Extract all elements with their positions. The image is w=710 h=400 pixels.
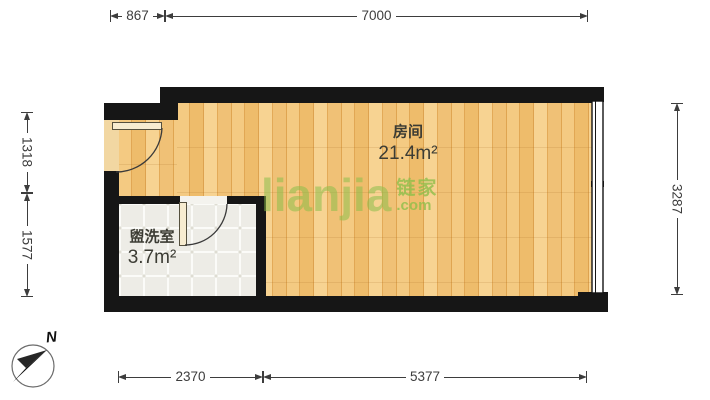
dim-tick (586, 371, 587, 383)
dimension-top-867: 867 (110, 9, 165, 23)
dim-tick (110, 10, 111, 22)
dim-line (396, 16, 580, 17)
bathroom-door-leaf (179, 202, 187, 246)
compass-circle (12, 345, 54, 387)
dim-tick (118, 371, 119, 383)
dim-tick (165, 10, 166, 22)
room-name: 房间 (393, 121, 423, 142)
bathroom-door-opening (180, 196, 227, 204)
dim-tick (263, 371, 264, 383)
dim-line (173, 16, 357, 17)
dimension-left-1577: 1577 (20, 193, 34, 297)
compass-north-label: N (45, 328, 58, 346)
dimension-right-3287: 3287 (670, 103, 684, 295)
dim-arrow-left-icon (110, 13, 118, 19)
dim-tick (671, 294, 683, 295)
dim-tick (587, 10, 588, 22)
wall-top-left (104, 103, 178, 120)
entry-door-leaf (112, 122, 162, 130)
bathroom-name: 盥洗室 (129, 226, 174, 247)
dim-arrow-up-icon (24, 193, 30, 201)
room-area: 21.4m² (378, 143, 437, 165)
dim-label: 7000 (357, 9, 395, 23)
wall-top-main (160, 87, 603, 103)
dim-line (27, 201, 28, 226)
window-frame (592, 101, 603, 293)
dim-arrow-up-icon (674, 103, 680, 111)
dim-label: 1577 (20, 226, 35, 264)
dimension-left-1318: 1318 (20, 112, 34, 193)
dim-line (27, 120, 28, 133)
window-mullion (591, 181, 604, 187)
dim-line (210, 377, 255, 378)
bathroom-wall-top-left (104, 196, 180, 204)
dim-label: 2370 (171, 370, 209, 384)
dim-tick (671, 103, 683, 104)
bathroom-wall-right (256, 196, 266, 296)
wall-left-lower (104, 171, 119, 312)
dim-line (27, 264, 28, 289)
dim-label: 5377 (406, 370, 444, 384)
dim-label: 1318 (20, 133, 35, 171)
dim-arrow-left-icon (165, 13, 173, 19)
wall-bottom (104, 296, 608, 312)
dim-arrow-up-icon (24, 112, 30, 120)
dim-line (677, 111, 678, 180)
dim-line (126, 377, 171, 378)
dim-line (27, 172, 28, 185)
dim-line (271, 377, 406, 378)
dim-arrow-left-icon (118, 374, 126, 380)
dimension-bottom-5377: 5377 (263, 370, 587, 384)
dim-line (677, 218, 678, 287)
dim-tick (21, 193, 33, 194)
dim-label: 867 (122, 9, 153, 23)
dim-tick (21, 112, 33, 113)
dimension-top-7000: 7000 (165, 9, 588, 23)
wall-right-bottom-block (578, 292, 608, 312)
wall-right-top-block (580, 87, 604, 102)
dim-tick (21, 296, 33, 297)
entry-nook-wood-floor (119, 120, 177, 196)
floor-plan: 房间 21.4m² 盥洗室 3.7m² lianjia 链家 .com N 86… (0, 0, 710, 400)
dim-line (444, 377, 579, 378)
dim-label: 3287 (670, 180, 685, 218)
compass-needle-icon (13, 350, 47, 382)
compass-needle-icon (17, 350, 47, 368)
bathroom-area: 3.7m² (128, 247, 177, 269)
dim-arrow-left-icon (263, 374, 271, 380)
dimension-bottom-2370: 2370 (118, 370, 263, 384)
